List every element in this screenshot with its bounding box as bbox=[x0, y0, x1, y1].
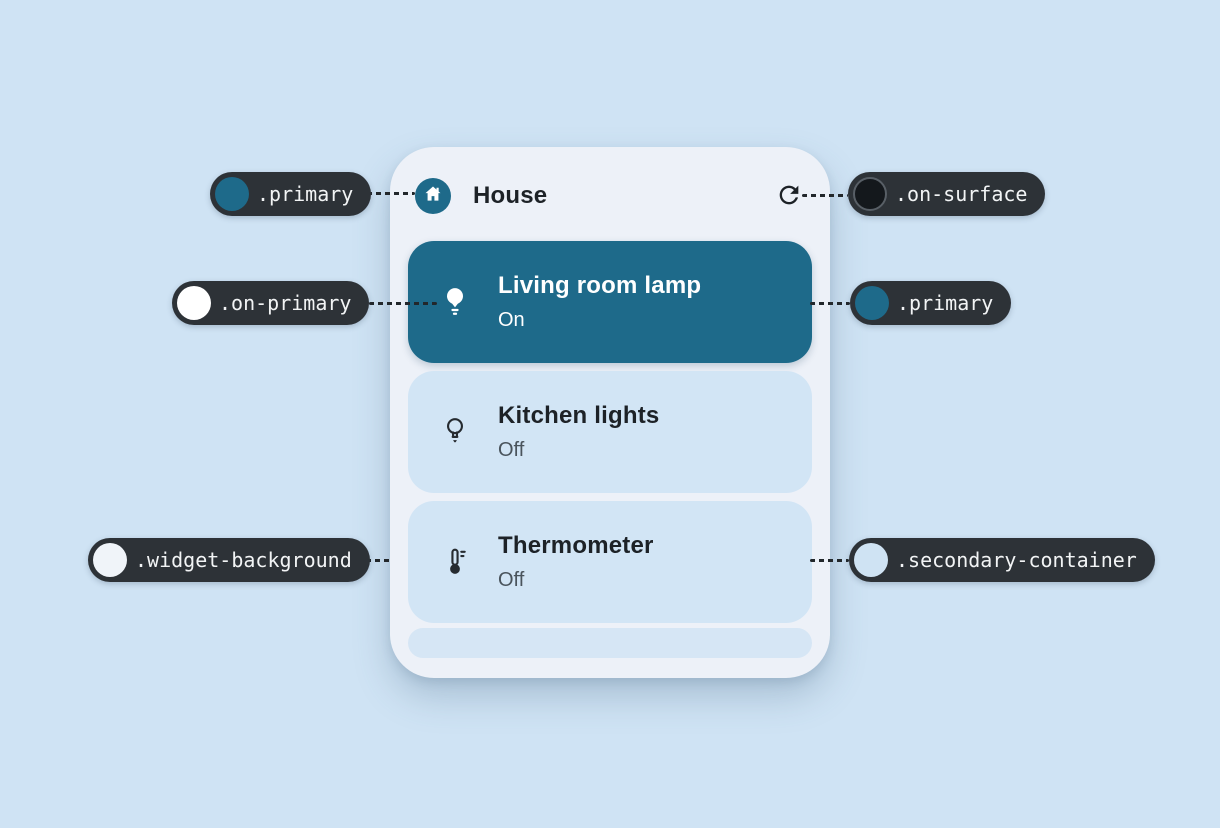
callout-label: .on-surface bbox=[895, 182, 1027, 206]
callout-on-surface: .on-surface bbox=[848, 172, 1045, 216]
callout-label: .secondary-container bbox=[896, 548, 1137, 572]
thermometer-icon bbox=[440, 546, 470, 578]
color-swatch bbox=[93, 543, 127, 577]
color-swatch bbox=[853, 177, 887, 211]
callout-primary-right: .primary bbox=[850, 281, 1011, 325]
lamp-outline-icon bbox=[440, 416, 470, 448]
refresh-icon bbox=[775, 181, 803, 212]
idle-device-card[interactable]: Kitchen lights Off bbox=[408, 371, 812, 493]
color-swatch bbox=[855, 286, 889, 320]
lamp-filled-icon bbox=[440, 286, 470, 318]
connector-widget-background bbox=[366, 559, 392, 562]
callout-label: .primary bbox=[897, 291, 993, 315]
house-icon bbox=[423, 184, 443, 209]
refresh-button[interactable] bbox=[775, 182, 803, 210]
canvas: House Living room lamp bbox=[0, 0, 1220, 828]
callout-primary-top-left: .primary bbox=[210, 172, 371, 216]
color-swatch bbox=[215, 177, 249, 211]
connector-primary-right bbox=[810, 302, 850, 305]
color-swatch bbox=[177, 286, 211, 320]
idle-device-card[interactable]: Thermometer Off bbox=[408, 501, 812, 623]
widget-header: House bbox=[415, 178, 803, 214]
widget-card: House Living room lamp bbox=[390, 147, 830, 678]
callout-label: .widget-background bbox=[135, 548, 352, 572]
callout-secondary-container: .secondary-container bbox=[849, 538, 1155, 582]
device-status: Off bbox=[498, 569, 654, 592]
callout-widget-background: .widget-background bbox=[88, 538, 370, 582]
active-device-card[interactable]: Living room lamp On bbox=[408, 241, 812, 363]
device-name: Thermometer bbox=[498, 532, 654, 560]
device-text: Thermometer Off bbox=[498, 532, 654, 592]
widget-title: House bbox=[473, 182, 547, 210]
callout-on-primary: .on-primary bbox=[172, 281, 369, 325]
house-icon-badge bbox=[415, 178, 451, 214]
device-text: Living room lamp On bbox=[498, 272, 701, 332]
connector-on-surface bbox=[802, 194, 848, 197]
connector-on-primary bbox=[369, 302, 437, 305]
connector-secondary-container bbox=[810, 559, 849, 562]
callout-label: .on-primary bbox=[219, 291, 351, 315]
device-status: On bbox=[498, 309, 701, 332]
callout-label: .primary bbox=[257, 182, 353, 206]
device-status: Off bbox=[498, 439, 659, 462]
device-name: Kitchen lights bbox=[498, 402, 659, 430]
device-text: Kitchen lights Off bbox=[498, 402, 659, 462]
color-swatch bbox=[854, 543, 888, 577]
partial-device-row bbox=[408, 628, 812, 658]
device-name: Living room lamp bbox=[498, 272, 701, 300]
connector-primary-top-left bbox=[367, 192, 415, 195]
